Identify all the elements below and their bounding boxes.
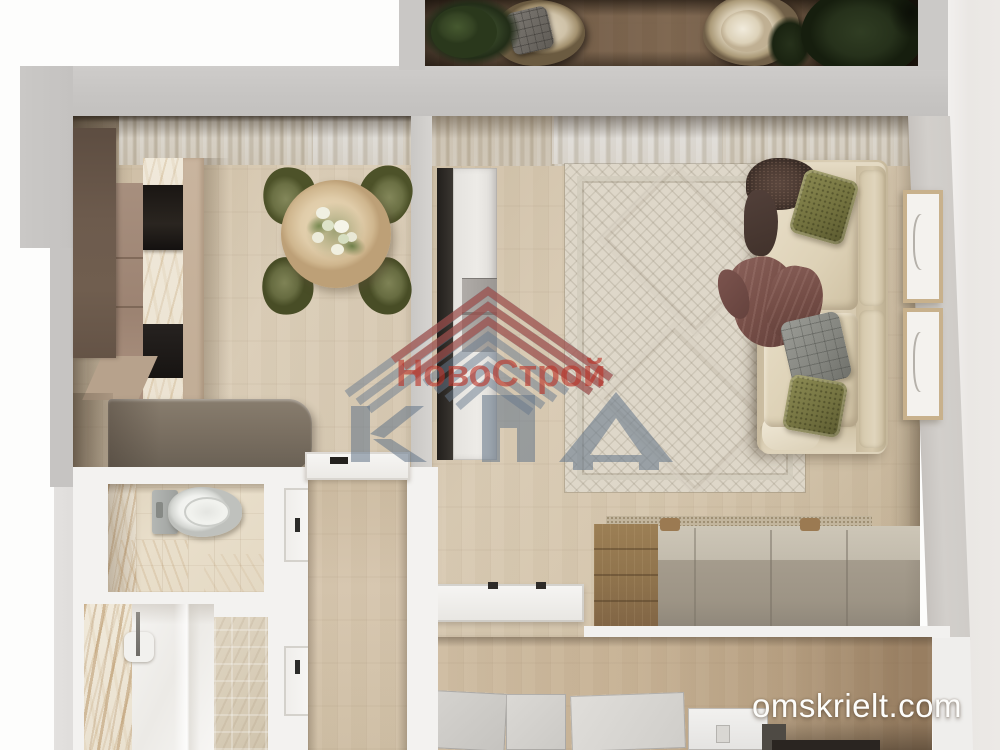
svg-text:НовоСтрой: НовоСтрой <box>396 353 606 395</box>
